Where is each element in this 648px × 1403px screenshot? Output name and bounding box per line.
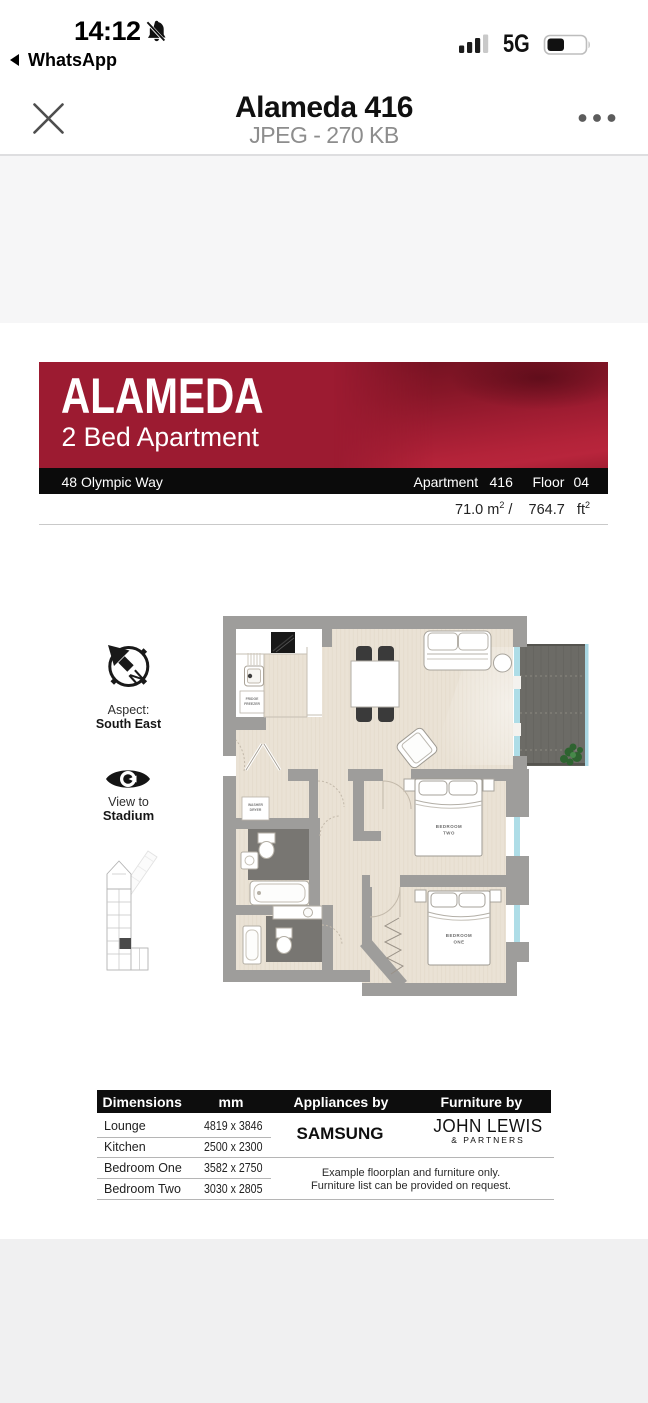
svg-text:FRIDGE: FRIDGE bbox=[246, 697, 260, 701]
svg-text:Aspect:: Aspect: bbox=[108, 703, 150, 717]
svg-text:DRYER: DRYER bbox=[250, 808, 262, 812]
svg-text:ONE: ONE bbox=[453, 940, 464, 945]
svg-text:TWO: TWO bbox=[443, 831, 455, 836]
svg-text:South East: South East bbox=[96, 717, 162, 731]
svg-text:BEDROOM: BEDROOM bbox=[436, 824, 462, 829]
svg-text:WASHER: WASHER bbox=[248, 803, 263, 807]
svg-text:FREEZER: FREEZER bbox=[244, 702, 260, 706]
svg-text:BEDROOM: BEDROOM bbox=[446, 933, 472, 938]
svg-text:View to: View to bbox=[108, 795, 149, 809]
svg-text:Stadium: Stadium bbox=[103, 808, 154, 823]
